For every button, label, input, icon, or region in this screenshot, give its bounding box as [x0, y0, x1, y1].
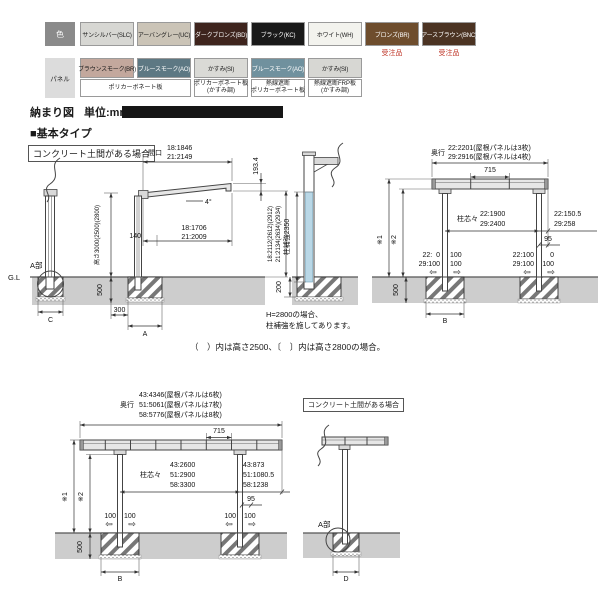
- star2-label: ※2: [78, 492, 85, 502]
- overhang-dim-29: 29:258: [554, 221, 576, 228]
- dim-500-label: 500: [97, 284, 104, 296]
- dim-140-label: 140: [129, 233, 141, 240]
- break-line-icon: [331, 143, 343, 187]
- span-dim-43: 43:2600: [170, 462, 195, 469]
- dim-d-label: D: [343, 576, 348, 583]
- overhang-dim-51: 51:1080.5: [243, 472, 274, 479]
- depth-dim-43: 43:4346(屋根パネルは6枚): [139, 390, 222, 399]
- front-height-label: 193.4: [253, 157, 260, 175]
- depth-dim-29: 29:2916(屋根パネルは4枚): [448, 152, 531, 161]
- hollow-arrow-left-icon: ⇦: [225, 519, 233, 529]
- hollow-arrow-right-icon: ⇨: [128, 519, 136, 529]
- dim-95-label: 95: [247, 496, 255, 503]
- panel-dim-21: 21:2009: [181, 234, 206, 241]
- reinforced-pillar-section: [306, 192, 313, 282]
- installation-diagram-canvas: G.L A部 C 間口 18:1846 21:2149 4° 140 18:17…: [0, 0, 600, 600]
- left-post-dim-22r: 100: [450, 252, 462, 259]
- depth-dim-51: 51:5061(屋根パネルは7枚): [139, 400, 222, 409]
- depth-dim-22: 22:2201(屋根パネルは3枚): [448, 143, 531, 152]
- dim-b-label: B: [118, 576, 123, 583]
- hollow-arrow-left-icon: ⇦: [429, 267, 437, 277]
- dim-500-label: 500: [77, 541, 84, 553]
- roof-slope-label: 4°: [205, 198, 212, 206]
- overhang-dim-22: 22:150.5: [554, 211, 581, 218]
- dim-c-label: C: [48, 317, 53, 324]
- overhang-dim-43: 43:873: [243, 462, 265, 469]
- panel-dim-18: 18:1706: [181, 225, 206, 232]
- span-dim-51: 51:2900: [170, 472, 195, 479]
- span-dim-29: 29:2400: [480, 221, 505, 228]
- depth-dim-label: 奥行: [431, 148, 445, 157]
- width-dim-label: 間口: [148, 149, 162, 157]
- width-dim-18: 18:1846: [167, 145, 192, 152]
- hollow-arrow-right-icon: ⇨: [248, 519, 256, 529]
- reinforce-note-line1: H=2800の場合、: [266, 309, 322, 319]
- pillar-reinforce-label: 柱補強2350: [282, 219, 291, 256]
- hollow-arrow-left-icon: ⇦: [105, 519, 113, 529]
- ground-level-label: G.L: [8, 273, 20, 282]
- pitch-715-label: 715: [213, 428, 225, 435]
- star1-label: ※1: [62, 492, 69, 502]
- depth-dim-label: 奥行: [120, 400, 134, 409]
- hollow-arrow-right-icon: ⇨: [547, 267, 555, 277]
- dim-200-label: 200: [276, 281, 283, 293]
- star2-label: ※2: [391, 235, 398, 245]
- right-post-dim-22r: 0: [550, 252, 554, 259]
- dim-95-label: 95: [544, 236, 552, 243]
- hollow-arrow-left-icon: ⇦: [523, 267, 531, 277]
- span-label: 柱芯々: [140, 470, 161, 479]
- diagram-concrete-detail: A部 D: [303, 425, 400, 583]
- span-dim-22: 22:1900: [480, 211, 505, 218]
- eave-dim-18: 18:2112(2612)(2912): [268, 206, 274, 262]
- pitch-715-label: 715: [484, 167, 496, 174]
- dim-a-label: A: [143, 331, 148, 338]
- height-note-label: 高さ3000(2500)(2800): [93, 205, 101, 265]
- reinforce-note-line2: 柱補強を施してあります。: [266, 320, 355, 330]
- diagram-side-elevation: G.L A部 C 間口 18:1846 21:2149 4° 140 18:17…: [8, 145, 288, 338]
- star1-label: ※1: [377, 235, 384, 245]
- a-part-label: A部: [30, 260, 43, 270]
- diagram-front-view-large: 43:4346(屋根パネルは6枚) 奥行 51:5061(屋根パネルは7枚) 5…: [55, 390, 290, 583]
- span-dim-58: 58:3300: [170, 482, 195, 489]
- hollow-arrow-right-icon: ⇨: [453, 267, 461, 277]
- depth-dim-58: 58:5776(屋根パネルは8枚): [139, 410, 222, 419]
- dim-300-label: 300: [114, 307, 126, 314]
- dim-500-label: 500: [393, 284, 400, 296]
- diagram-front-view-small: 奥行 22:2201(屋根パネルは3枚) 29:2916(屋根パネルは4枚) 7…: [372, 143, 598, 325]
- left-post-dim-22: 22: 0: [422, 252, 440, 259]
- eave-dim-21: 21:2134(2634)(2934): [276, 206, 282, 262]
- width-dim-21: 21:2149: [167, 154, 192, 161]
- a-part-label: A部: [318, 519, 331, 529]
- dim-b-label: B: [443, 318, 448, 325]
- span-label: 柱芯々: [457, 214, 478, 223]
- right-post-dim-22: 22:100: [513, 252, 535, 259]
- overhang-dim-58: 58:1238: [243, 482, 268, 489]
